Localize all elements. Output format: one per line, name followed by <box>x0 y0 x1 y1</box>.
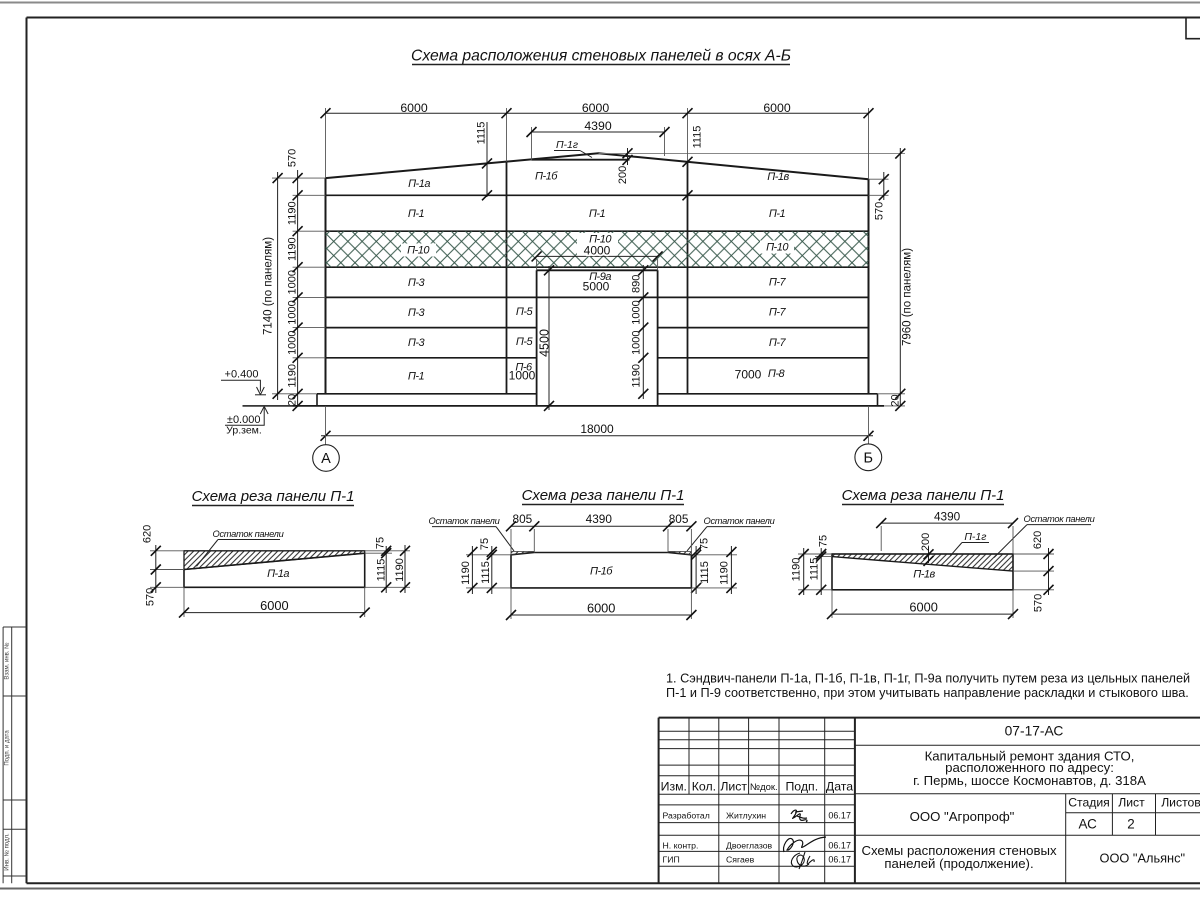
svg-text:1115: 1115 <box>480 561 492 584</box>
svg-text:Разработал: Разработал <box>663 811 710 821</box>
svg-text:1. Сэндвич-панели П-1а, П-1б,: 1. Сэндвич-панели П-1а, П-1б, П-1в, П-1г… <box>666 672 1190 686</box>
svg-text:890: 890 <box>631 275 643 293</box>
svg-text:1000: 1000 <box>287 330 299 354</box>
svg-text:4000: 4000 <box>584 243 611 257</box>
svg-text:1115: 1115 <box>699 561 711 584</box>
svg-text:П-1б: П-1б <box>535 171 558 183</box>
svg-text:805: 805 <box>669 512 689 526</box>
svg-text:Сягаев: Сягаев <box>726 855 755 865</box>
svg-text:7140 (по панелям): 7140 (по панелям) <box>263 237 275 335</box>
svg-text:П-5: П-5 <box>516 336 534 348</box>
svg-text:1000: 1000 <box>287 270 299 294</box>
svg-text:ГИП: ГИП <box>663 855 680 865</box>
svg-text:1000: 1000 <box>287 300 299 324</box>
svg-text:570: 570 <box>287 149 299 167</box>
svg-text:7960 (по панелям): 7960 (по панелям) <box>902 248 914 346</box>
svg-text:Б: Б <box>864 450 874 466</box>
svg-text:6000: 6000 <box>909 600 937 615</box>
svg-text:570: 570 <box>1033 594 1045 612</box>
svg-text:7000: 7000 <box>735 367 762 381</box>
svg-text:20: 20 <box>287 394 299 406</box>
svg-text:1190: 1190 <box>719 561 731 585</box>
svg-text:570: 570 <box>874 202 886 220</box>
svg-text:Взам. инв. №: Взам. инв. № <box>4 642 11 679</box>
svg-text:Подп.: Подп. <box>785 780 818 794</box>
svg-text:1190: 1190 <box>394 558 406 582</box>
svg-text:П-1: П-1 <box>408 370 425 382</box>
svg-text:П-1в: П-1в <box>767 171 789 183</box>
svg-text:1190: 1190 <box>287 237 299 261</box>
svg-text:620: 620 <box>1032 531 1044 549</box>
svg-text:5000: 5000 <box>583 280 610 294</box>
svg-text:6000: 6000 <box>260 598 288 613</box>
svg-text:П-1г: П-1г <box>964 531 986 543</box>
svg-text:П-8: П-8 <box>768 368 786 380</box>
svg-text:Лист: Лист <box>1118 796 1145 810</box>
svg-text:АС: АС <box>1078 816 1097 831</box>
svg-text:805: 805 <box>513 512 533 526</box>
svg-text:4500: 4500 <box>538 329 552 357</box>
svg-text:Н. контр.: Н. контр. <box>663 841 699 851</box>
svg-text:Остаток панели: Остаток панели <box>704 516 775 526</box>
svg-text:П-5: П-5 <box>516 306 534 318</box>
svg-text:Кол.: Кол. <box>692 780 716 794</box>
svg-text:06.17: 06.17 <box>828 811 851 821</box>
svg-text:6000: 6000 <box>763 101 791 115</box>
svg-text:ООО "Агропроф": ООО "Агропроф" <box>910 809 1015 824</box>
svg-text:П-7: П-7 <box>769 337 787 349</box>
svg-text:П-3: П-3 <box>408 307 426 319</box>
svg-text:1190: 1190 <box>287 364 299 388</box>
svg-text:1000: 1000 <box>631 300 643 324</box>
svg-text:1190: 1190 <box>631 364 643 388</box>
svg-text:г. Пермь, шоссе Космонавтов, д: г. Пермь, шоссе Космонавтов, д. 318А <box>913 773 1146 788</box>
svg-text:Остаток панели: Остаток панели <box>1024 514 1095 524</box>
svg-text:Инв. № подл.: Инв. № подл. <box>4 833 11 871</box>
svg-text:75: 75 <box>818 535 830 547</box>
svg-text:П-10: П-10 <box>407 245 430 257</box>
svg-text:Схема реза панели П-1: Схема реза панели П-1 <box>842 487 1005 504</box>
svg-text:06.17: 06.17 <box>828 855 851 865</box>
svg-text:4390: 4390 <box>586 512 613 526</box>
svg-text:+0.400: +0.400 <box>225 369 259 381</box>
svg-text:2: 2 <box>1127 816 1134 831</box>
svg-text:1000: 1000 <box>631 330 643 354</box>
svg-text:№док.: №док. <box>750 782 778 793</box>
svg-text:200: 200 <box>617 166 629 184</box>
svg-text:П-1в: П-1в <box>913 569 935 581</box>
svg-text:Схема реза панели П-1: Схема реза панели П-1 <box>192 488 355 505</box>
svg-text:200: 200 <box>920 533 932 551</box>
svg-text:1115: 1115 <box>692 126 704 149</box>
svg-text:4390: 4390 <box>584 119 612 133</box>
svg-text:6000: 6000 <box>582 101 610 115</box>
svg-text:1190: 1190 <box>287 201 299 225</box>
svg-text:А: А <box>321 451 331 467</box>
svg-text:1190: 1190 <box>460 561 472 585</box>
svg-text:06.17: 06.17 <box>828 841 851 851</box>
svg-text:18000: 18000 <box>580 422 614 436</box>
svg-text:П-3: П-3 <box>408 277 426 289</box>
svg-text:1115: 1115 <box>809 558 821 581</box>
svg-text:Ур.зем.: Ур.зем. <box>226 425 262 437</box>
svg-text:П-1: П-1 <box>589 208 606 220</box>
svg-text:П-1а: П-1а <box>267 568 289 580</box>
svg-text:6000: 6000 <box>400 101 428 115</box>
svg-text:Двоеглазов: Двоеглазов <box>726 841 773 851</box>
svg-text:П-1: П-1 <box>408 208 425 220</box>
svg-text:Житлухин: Житлухин <box>726 811 766 821</box>
svg-text:1000: 1000 <box>509 369 536 383</box>
svg-text:07-17-АС: 07-17-АС <box>1005 724 1064 739</box>
svg-text:Схема реза панели П-1: Схема реза панели П-1 <box>522 487 685 504</box>
svg-text:панелей (продолжение).: панелей (продолжение). <box>884 856 1033 871</box>
svg-text:Схема расположения стеновых па: Схема расположения стеновых панелей в ос… <box>411 48 791 65</box>
svg-text:П-1: П-1 <box>769 208 786 220</box>
svg-text:75: 75 <box>479 538 491 550</box>
svg-text:П-7: П-7 <box>769 276 787 288</box>
svg-text:П-1г: П-1г <box>556 139 578 151</box>
svg-text:Лист: Лист <box>720 780 747 794</box>
svg-text:П-7: П-7 <box>769 307 787 319</box>
svg-text:75: 75 <box>375 537 387 549</box>
svg-text:П-10: П-10 <box>766 242 789 254</box>
svg-text:Остаток панели: Остаток панели <box>213 529 284 539</box>
svg-text:6000: 6000 <box>587 601 615 616</box>
svg-text:П-1а: П-1а <box>408 178 430 190</box>
svg-text:570: 570 <box>145 588 157 606</box>
svg-text:П-3: П-3 <box>408 337 426 349</box>
svg-text:Подп. и дата: Подп. и дата <box>5 730 11 766</box>
svg-text:Стадия: Стадия <box>1068 796 1110 810</box>
svg-text:Листов: Листов <box>1161 796 1200 810</box>
svg-text:Изм.: Изм. <box>661 780 687 794</box>
svg-text:П-1 и П-9 соответственно, при: П-1 и П-9 соответственно, при этом учиты… <box>666 686 1189 700</box>
svg-text:1115: 1115 <box>376 559 388 582</box>
svg-text:620: 620 <box>142 525 154 543</box>
svg-text:1190: 1190 <box>791 558 803 582</box>
svg-text:ООО "Альянс": ООО "Альянс" <box>1100 850 1186 865</box>
svg-text:4390: 4390 <box>934 510 961 524</box>
svg-text:20: 20 <box>890 394 902 406</box>
svg-text:Дата: Дата <box>826 780 853 794</box>
svg-text:Остаток панели: Остаток панели <box>429 516 500 526</box>
svg-text:1115: 1115 <box>476 122 488 145</box>
svg-text:П-1б: П-1б <box>590 566 613 578</box>
svg-text:75: 75 <box>699 538 711 550</box>
